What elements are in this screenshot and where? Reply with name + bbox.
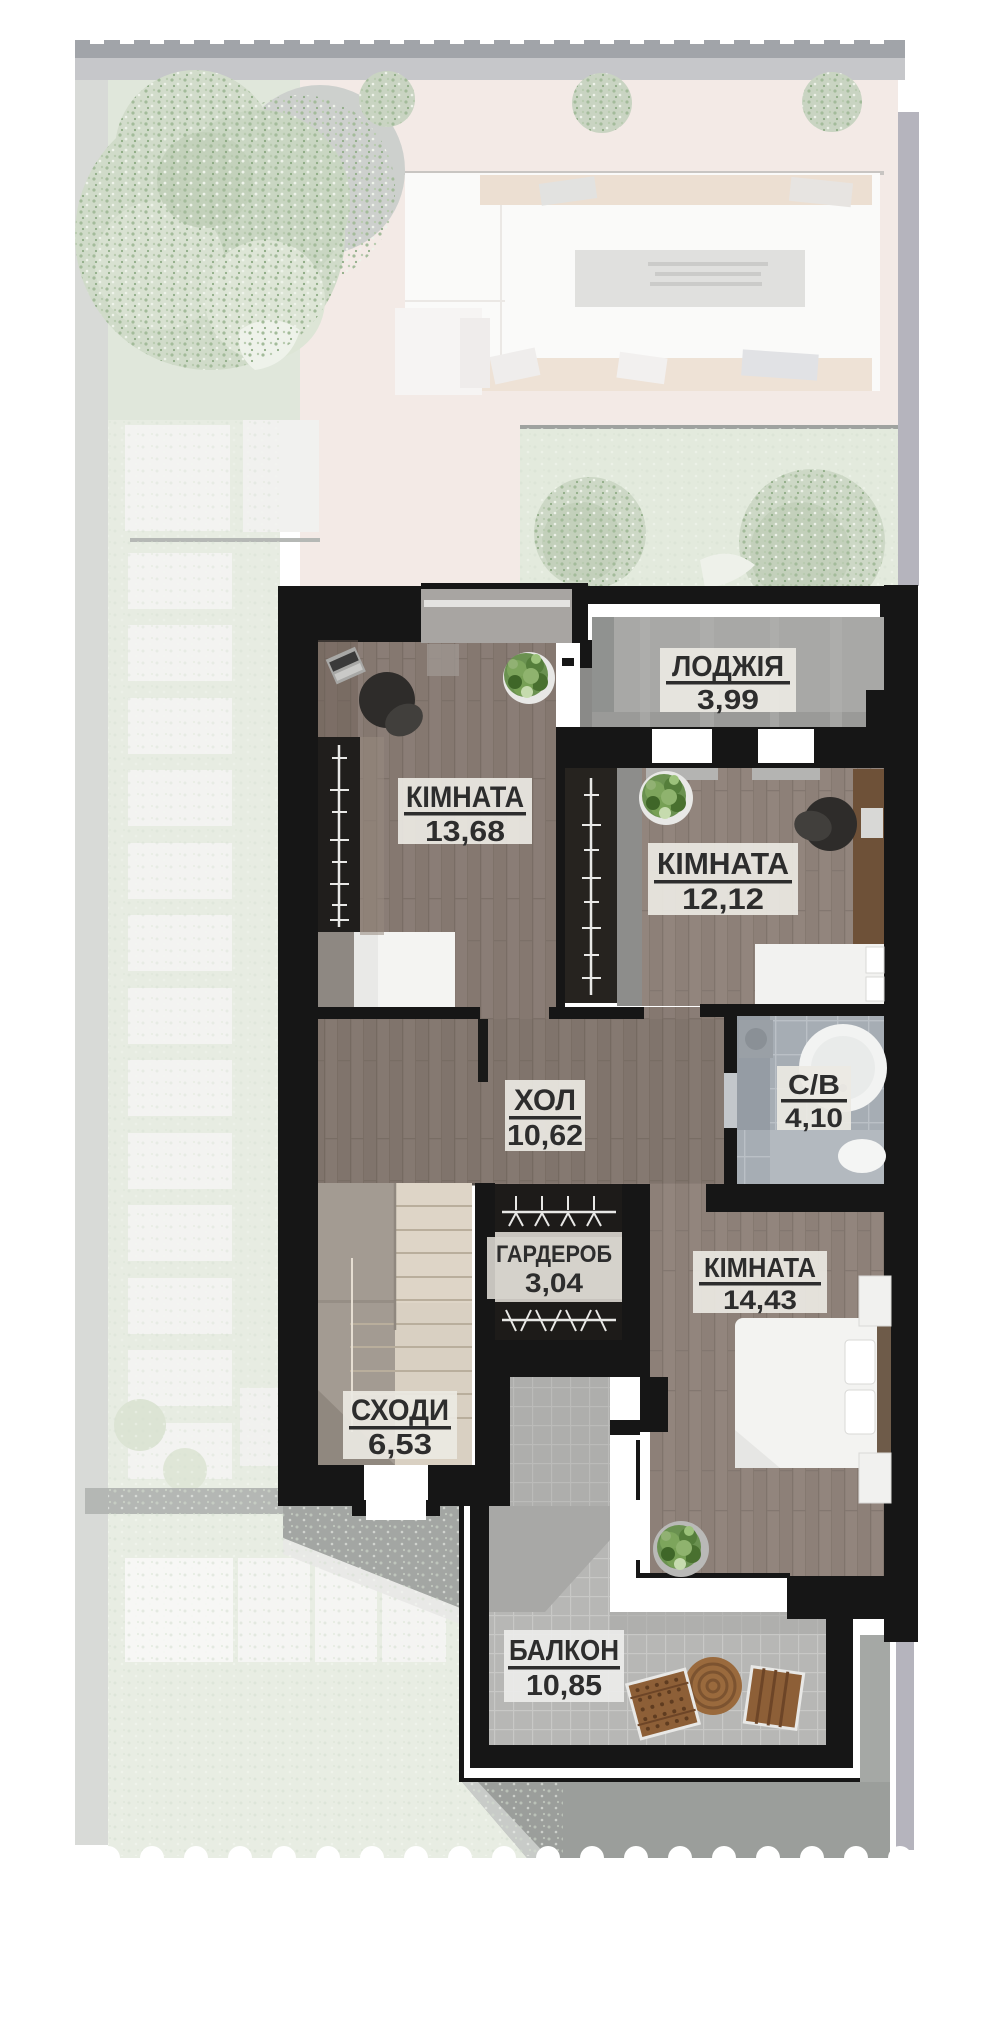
svg-text:ХОЛ: ХОЛ [514,1084,576,1117]
svg-text:СХОДИ: СХОДИ [351,1394,449,1427]
svg-text:КІМНАТА: КІМНАТА [657,846,789,881]
svg-text:4,10: 4,10 [785,1103,843,1133]
svg-text:КІМНАТА: КІМНАТА [704,1252,816,1283]
svg-text:10,85: 10,85 [526,1670,602,1702]
svg-text:13,68: 13,68 [425,816,505,848]
svg-text:БАЛКОН: БАЛКОН [509,1635,619,1667]
svg-text:12,12: 12,12 [682,883,764,916]
svg-text:ГАРДЕРОБ: ГАРДЕРОБ [496,1241,612,1268]
svg-text:10,62: 10,62 [507,1120,583,1152]
svg-text:6,53: 6,53 [368,1429,432,1461]
svg-text:ЛОДЖІЯ: ЛОДЖІЯ [672,651,784,683]
svg-text:3,04: 3,04 [525,1268,583,1298]
svg-text:КІМНАТА: КІМНАТА [406,781,524,814]
svg-text:3,99: 3,99 [697,684,759,715]
svg-text:С/В: С/В [788,1069,840,1100]
svg-text:14,43: 14,43 [723,1285,797,1315]
